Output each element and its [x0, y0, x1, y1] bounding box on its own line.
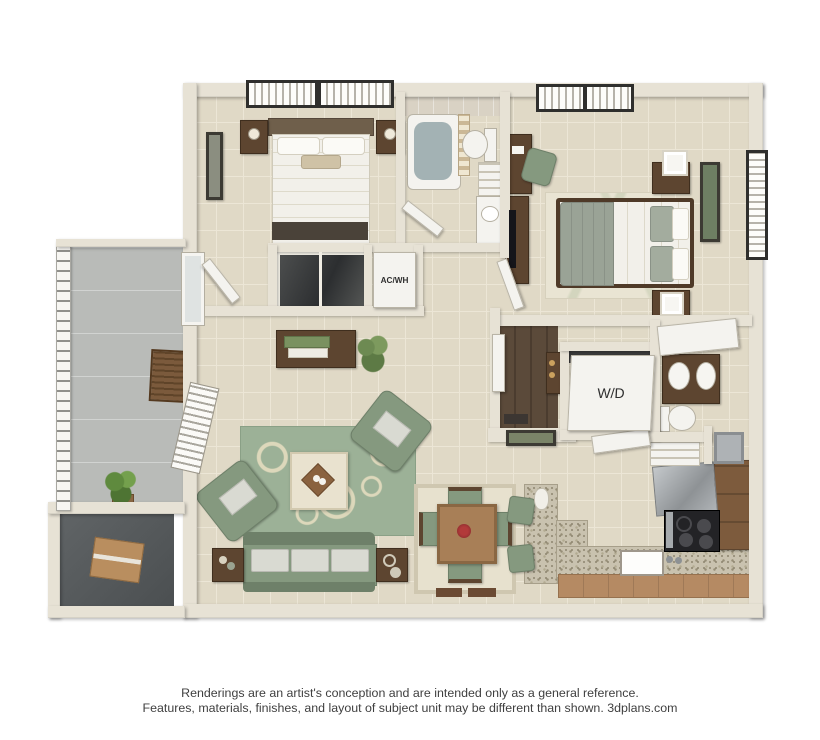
- stove-stainless-edge: [666, 512, 673, 548]
- kitchen-faucet: [666, 556, 673, 563]
- bath2-sink-left: [668, 362, 690, 390]
- bed1-lamp-right: [384, 128, 396, 140]
- balcony-wall-stub: [56, 239, 186, 247]
- bar-vase: [534, 488, 549, 510]
- master-cube-lamp-top: [662, 150, 688, 176]
- laundry-closet-door: W/D: [567, 355, 655, 431]
- storage-box: [89, 537, 144, 584]
- side-table-left: [212, 548, 244, 582]
- laundry-closet-label: W/D: [597, 385, 625, 401]
- storage-wall-bottom: [48, 606, 185, 618]
- foyer-door: [492, 334, 505, 392]
- master-pillow-white-top: [672, 208, 689, 240]
- master-cube-lamp-bottom: [660, 292, 684, 316]
- floor-plan-canvas: AC/WH W/D: [0, 0, 820, 740]
- sofa-front: [243, 582, 375, 592]
- foyer-console-table: [546, 352, 561, 394]
- kitchen-counter-face: [558, 574, 754, 598]
- bed1-foot-runner: [272, 222, 368, 240]
- bar-stool-top: [506, 495, 536, 525]
- master-side-window: [746, 150, 768, 260]
- outer-wall-bottom: [183, 604, 763, 618]
- master-wall-art: [700, 162, 720, 242]
- closet-mirror-mullion: [319, 252, 322, 306]
- dining-mat-right: [468, 588, 496, 597]
- balcony-railing: [56, 243, 71, 511]
- living-plant: [356, 332, 390, 376]
- master-desk-paper: [512, 146, 524, 154]
- bedroom1-wall-art: [206, 132, 223, 200]
- bath1-linen-shelves: [478, 162, 502, 196]
- bed1-lamp-left: [248, 128, 260, 140]
- wall-laundry-top: [560, 342, 660, 351]
- bath1-sink: [481, 206, 499, 222]
- kitchen-sink: [620, 550, 664, 576]
- console-magazines-white: [288, 348, 328, 358]
- master-pillow-sage-bottom: [650, 246, 674, 282]
- foyer-wall-art: [506, 430, 556, 446]
- kitchen-cabinets-right: [714, 460, 754, 550]
- bath2-sink-right: [696, 362, 716, 390]
- sofa-cushion-1: [251, 549, 289, 572]
- toilet2-bowl: [668, 405, 696, 431]
- disclaimer-line-1: Renderings are an artist's conception an…: [0, 686, 820, 701]
- bathtub-water: [414, 122, 452, 180]
- outer-wall-left: [183, 83, 197, 618]
- side-table-left-decor: [219, 556, 227, 564]
- bar-stool-bottom: [507, 544, 536, 574]
- console-magazines-green: [284, 336, 330, 348]
- bedroom1-window-right: [318, 80, 394, 108]
- bed1-pillow-right: [322, 137, 365, 155]
- wall-kitchen-nook: [704, 426, 712, 464]
- storage-wall-left: [48, 502, 60, 618]
- master-pillow-sage-top: [650, 206, 674, 242]
- wall-bath2-bottom: [650, 432, 712, 442]
- bed1-accent-pillow: [301, 155, 341, 169]
- coffee-table-cups: [313, 475, 320, 482]
- dining-centerpiece: [457, 524, 471, 538]
- wall-closet-divider: [364, 245, 372, 313]
- disclaimer-text: Renderings are an artist's conception an…: [0, 686, 820, 716]
- stove-burners: [676, 516, 692, 532]
- wall-closet-band-top: [268, 243, 505, 252]
- master-comforter: [560, 202, 614, 286]
- foyer-doormat: [504, 414, 528, 424]
- refrigerator: [652, 461, 718, 516]
- master-pillow-white-bottom: [672, 248, 689, 280]
- foyer-candles: [549, 360, 555, 366]
- toilet1-bowl: [462, 130, 488, 159]
- sofa-cushion-2: [291, 549, 329, 572]
- utility-closet-label: AC/WH: [381, 276, 409, 285]
- master-window-left: [536, 84, 586, 112]
- sofa-cushion-3: [331, 549, 369, 572]
- master-window-right: [584, 84, 634, 112]
- wall-bedroom1-bath1: [396, 92, 405, 250]
- wall-closet-left: [268, 245, 277, 313]
- master-tv: [509, 210, 516, 268]
- kitchen-upper-cabinet: [650, 440, 700, 466]
- bed1-pillow-left: [277, 137, 320, 155]
- dining-mat-left: [436, 588, 462, 597]
- side-table-right-decor: [383, 554, 396, 567]
- utility-closet-door: AC/WH: [373, 252, 416, 308]
- kitchen-nook-art: [714, 432, 744, 464]
- closet-mirror-doors: [277, 252, 370, 312]
- bedroom1-window-left: [246, 80, 318, 108]
- disclaimer-line-2: Features, materials, finishes, and layou…: [0, 701, 820, 716]
